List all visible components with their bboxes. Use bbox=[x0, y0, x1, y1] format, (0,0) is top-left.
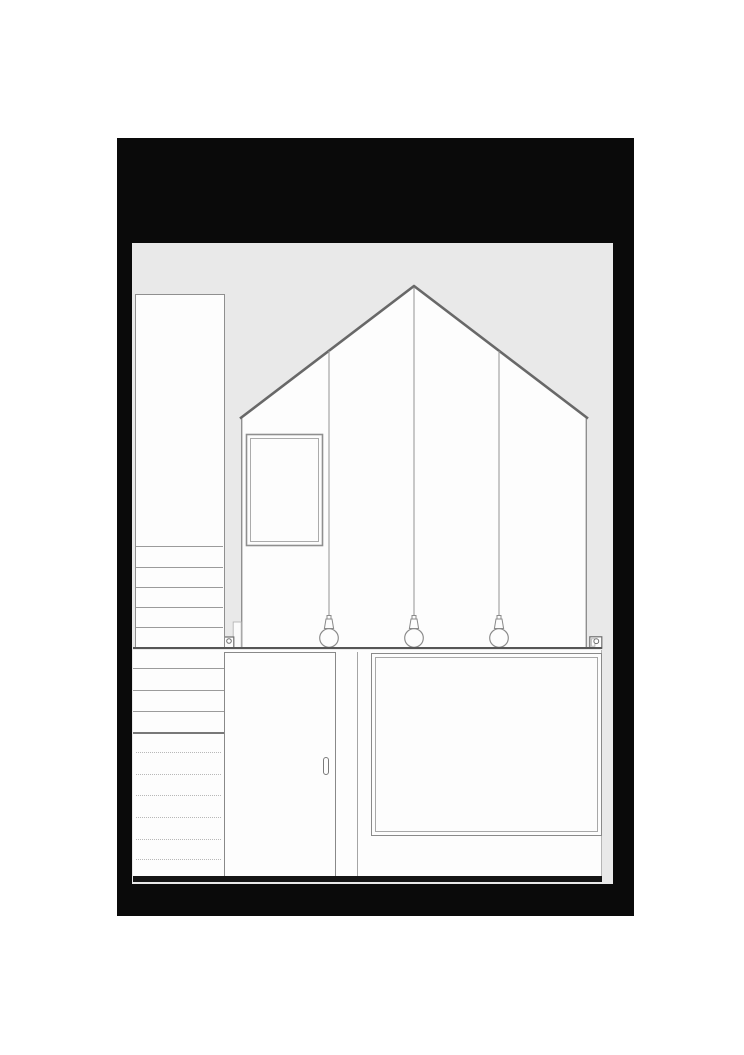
stair-tread bbox=[136, 567, 223, 568]
hidden-stair-tread bbox=[136, 839, 222, 840]
hidden-stair-tread bbox=[136, 774, 222, 775]
wall-joint-line bbox=[357, 652, 358, 878]
track-bracket-left bbox=[224, 622, 241, 648]
stair-tread bbox=[136, 627, 223, 628]
ground-line bbox=[133, 876, 602, 882]
storefront-window-inner-frame bbox=[375, 657, 598, 832]
stair-tread bbox=[136, 607, 223, 608]
storefront-window bbox=[371, 653, 602, 836]
gable-window-outer bbox=[247, 435, 323, 546]
stair-tread bbox=[136, 546, 223, 547]
stair-tread bbox=[133, 668, 224, 669]
sliding-door-panel bbox=[224, 652, 336, 878]
hidden-stair-tread bbox=[136, 752, 222, 753]
upper-floor-line bbox=[133, 647, 602, 650]
gable-window-frame bbox=[247, 435, 323, 546]
stair-tread bbox=[133, 711, 224, 712]
stair-section-line bbox=[133, 732, 224, 734]
page: { "meta": { "description": "Black-matted… bbox=[0, 0, 744, 1055]
stair-tread bbox=[133, 690, 224, 691]
stair-tread bbox=[136, 587, 223, 588]
hidden-stair-tread bbox=[136, 859, 222, 860]
stair-shaft bbox=[135, 294, 225, 648]
hidden-stair-tread bbox=[136, 795, 222, 796]
hidden-stair-tread bbox=[136, 817, 222, 818]
door-handle bbox=[323, 757, 329, 775]
